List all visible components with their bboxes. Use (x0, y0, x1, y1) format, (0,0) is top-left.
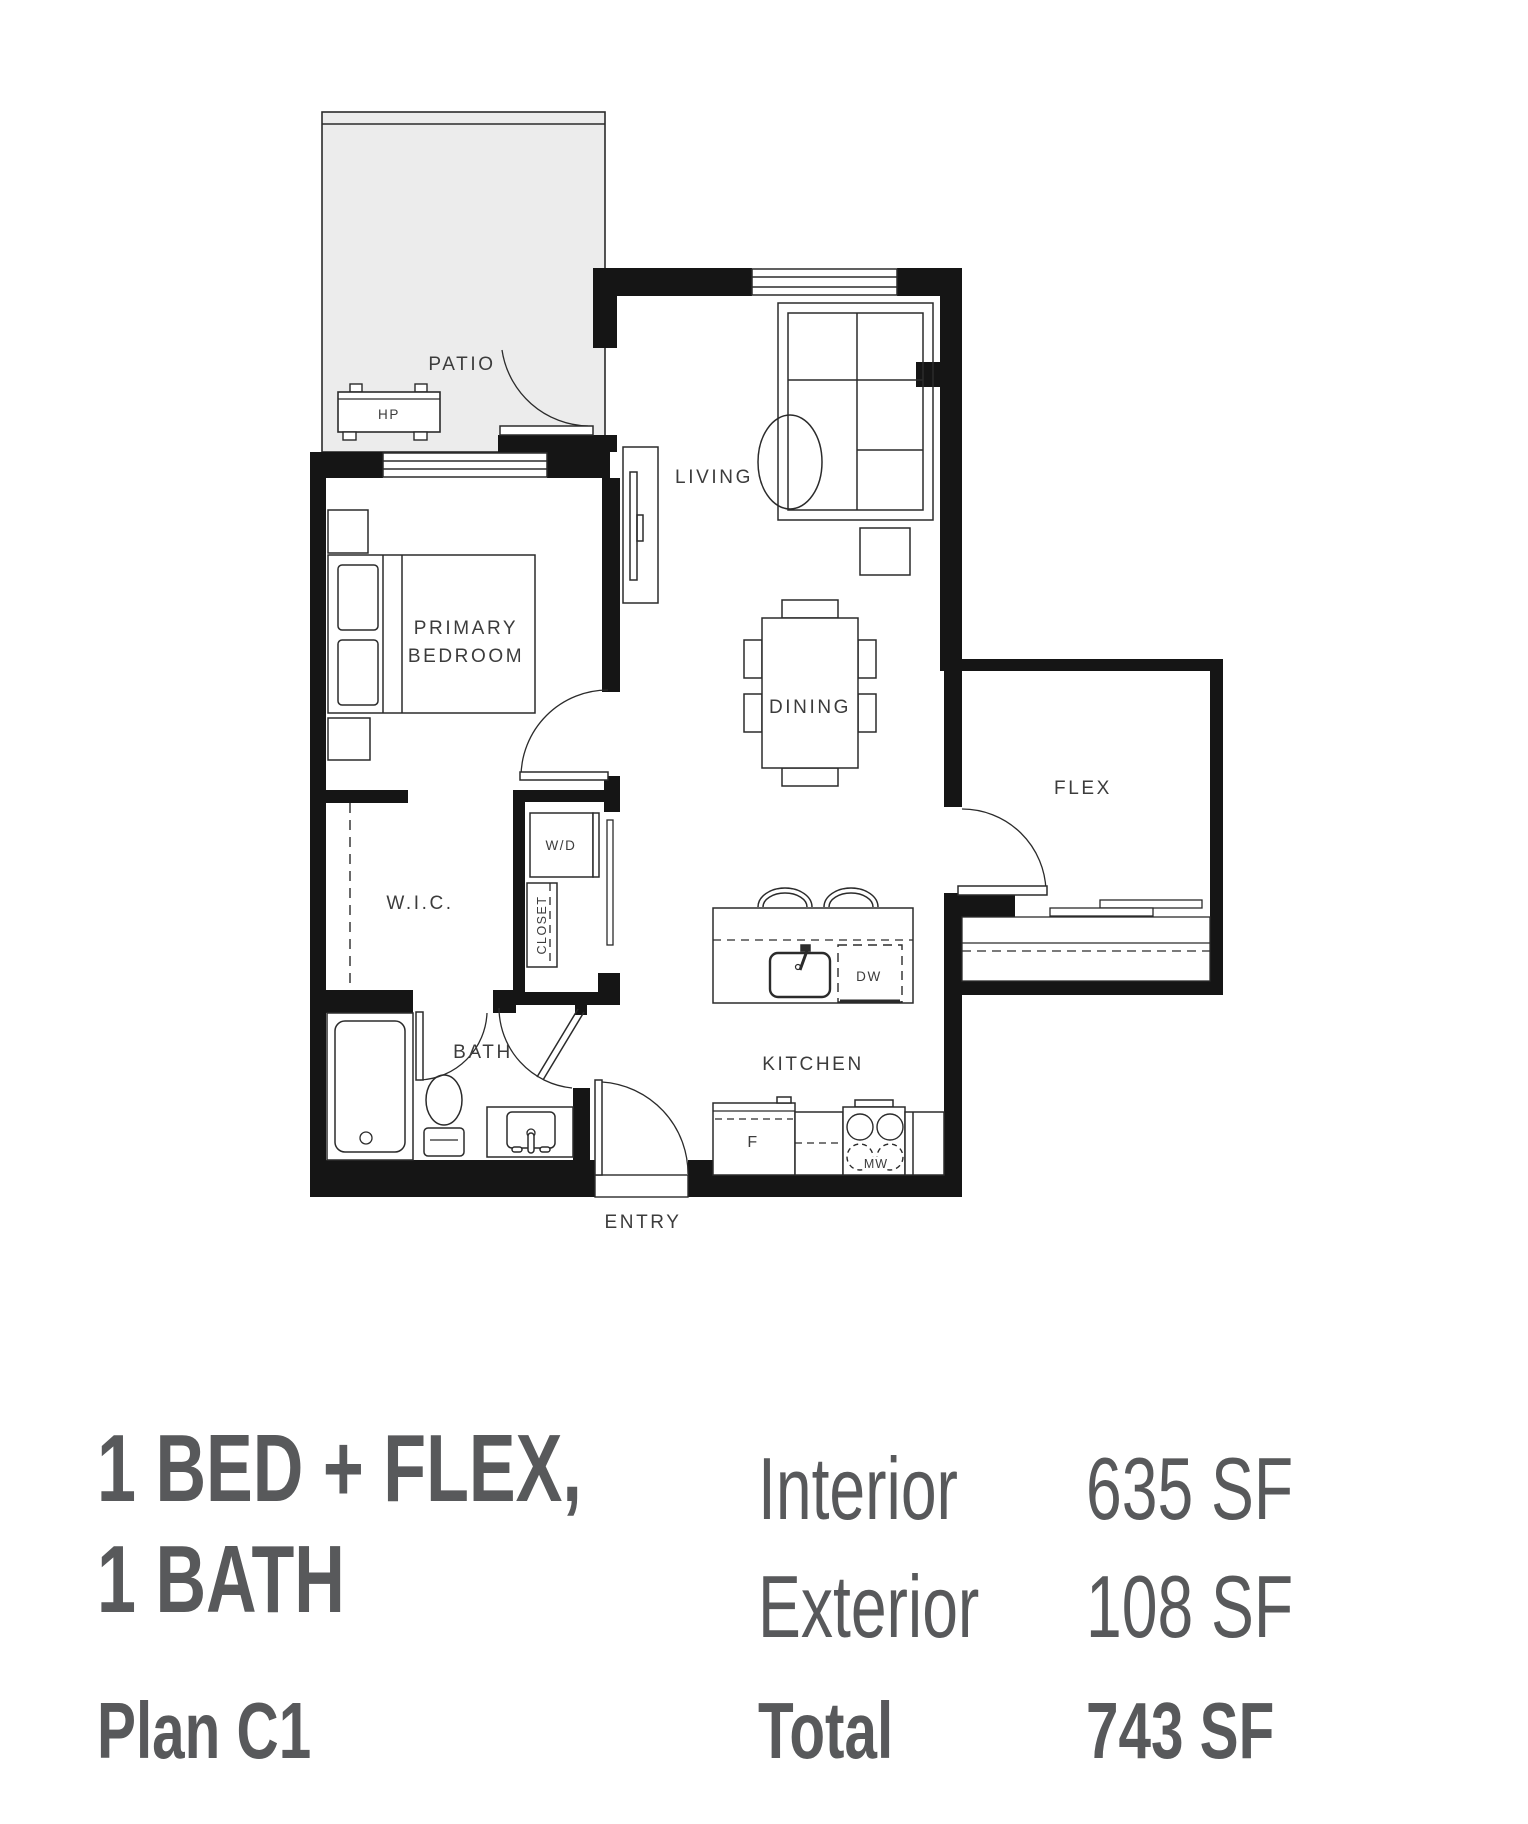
interior-value: 635 SF (1086, 1445, 1293, 1533)
kitchen (713, 888, 944, 1175)
fridge-label: F (747, 1134, 758, 1151)
flex-room (958, 809, 1210, 981)
entry-door-icon (595, 1080, 602, 1175)
flex-label: FLEX (1054, 778, 1112, 799)
microwave-label: MW (864, 1157, 888, 1171)
vanity-sink-icon (487, 1107, 573, 1157)
nightstand-icon (328, 510, 368, 553)
nightstand-icon (328, 718, 370, 760)
unit-title-line1: 1 BED + FLEX, (97, 1414, 582, 1525)
heat-pump-label: HP (378, 407, 400, 422)
sink-icon (770, 945, 830, 997)
unit-title-line2: 1 BATH (97, 1525, 582, 1636)
entry-label: ENTRY (604, 1212, 681, 1233)
living-window-icon (752, 269, 897, 295)
bedroom-window-icon (383, 453, 547, 477)
total-label: Total (758, 1691, 893, 1771)
dishwasher-label: DW (856, 969, 882, 984)
plan-name: Plan C1 (97, 1691, 311, 1771)
sofa-icon (778, 303, 933, 575)
counter-icon (795, 1112, 843, 1175)
flex-desk-icon (1050, 908, 1153, 916)
unit-title: 1 BED + FLEX, 1 BATH (97, 1414, 582, 1636)
total-value: 743 SF (1086, 1691, 1274, 1771)
primary-bedroom-label-line2: BEDROOM (408, 646, 524, 667)
exterior-label: Exterior (758, 1563, 979, 1651)
closet-label: CLOSET (535, 895, 549, 954)
patio-label: PATIO (428, 354, 495, 375)
counter-icon (905, 1112, 944, 1175)
bathroom (327, 1008, 584, 1160)
dining-label: DINING (769, 697, 851, 718)
coffee-table-icon (758, 415, 822, 509)
living-room (623, 303, 933, 603)
wic-label: W.I.C. (386, 893, 453, 914)
entry-threshold-icon (595, 1175, 688, 1197)
bathtub-icon (327, 1013, 413, 1160)
patio: HP PATIO (322, 112, 605, 452)
tv-console-icon (623, 447, 658, 603)
entry (595, 1080, 688, 1197)
primary-bedroom-label-line1: PRIMARY (414, 618, 518, 639)
dining-set-icon (744, 600, 876, 786)
bath-label: BATH (453, 1042, 513, 1063)
living-label: LIVING (675, 467, 753, 488)
flex-window-band-icon (962, 917, 1210, 981)
exterior-value: 108 SF (1086, 1563, 1293, 1651)
toilet-icon (424, 1075, 464, 1156)
interior-label: Interior (758, 1445, 958, 1533)
kitchen-label: KITCHEN (762, 1054, 864, 1075)
kitchen-island-icon (713, 888, 913, 1003)
washer-dryer-label: W/D (545, 838, 576, 853)
page: HP PATIO (0, 0, 1528, 1824)
flex-door-icon (958, 886, 1047, 895)
flex-desk-icon (1100, 900, 1202, 908)
